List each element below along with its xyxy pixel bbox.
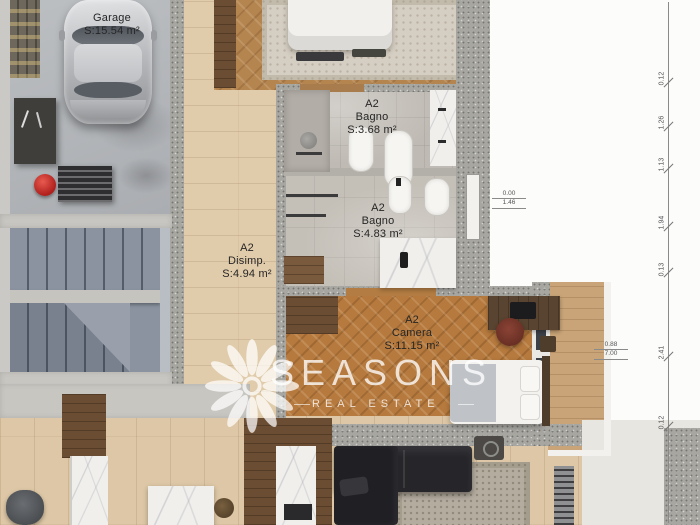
laptop	[510, 302, 536, 319]
bed	[288, 0, 392, 50]
room-name: Disimp.	[197, 255, 297, 268]
room-area: S:3.68 m²	[322, 124, 422, 137]
level-marker: 0.00 1.46	[492, 190, 526, 209]
stairs-upper-flight	[8, 228, 160, 290]
desk-chair	[496, 318, 524, 346]
shower-valve-bar	[296, 152, 322, 155]
room-area: S:4.83 m²	[328, 228, 428, 241]
watermark-dash-left	[294, 404, 310, 405]
disimpegno-label: A2 Disimp. S:4.94 m²	[197, 242, 297, 281]
wall-terrace-corner	[664, 428, 700, 525]
stool	[214, 498, 234, 518]
kitchen-island	[148, 486, 214, 525]
dimension-label: 0.12	[659, 66, 666, 92]
bagno-large-label: A2 Bagno S:4.83 m²	[328, 202, 428, 241]
vanity-faucet	[400, 252, 408, 268]
bed-bench	[296, 52, 344, 61]
bed-bench-small	[352, 49, 386, 57]
room-area: S:4.94 m²	[197, 268, 297, 281]
shower-mixer	[438, 140, 446, 143]
pillow	[520, 394, 540, 420]
towel-rail	[286, 194, 338, 197]
level-value: 7.00	[594, 350, 628, 359]
wall-left-outer	[0, 0, 10, 418]
bed-headboard	[542, 356, 550, 426]
room-code: A2	[328, 202, 428, 215]
room-name: Garage	[64, 12, 160, 25]
car-rear-window	[74, 82, 142, 98]
towel-rail	[286, 214, 326, 217]
armchair	[6, 490, 44, 525]
bedroom-wardrobe	[214, 0, 236, 88]
balcony-railing-bottom	[548, 450, 611, 456]
stairs-landing	[8, 290, 160, 303]
fridge-column	[70, 456, 108, 525]
dimension-label: 1.26	[659, 110, 666, 136]
sofa-cushion-seam	[403, 450, 405, 488]
stove-knob	[483, 441, 499, 457]
room-name: Camera	[362, 327, 462, 340]
dimension-label: 1.13	[659, 152, 666, 178]
room-area: S:15.54 m²	[64, 25, 160, 38]
camera-door-threshold	[346, 288, 436, 296]
wall-right-main	[456, 0, 490, 296]
balcony-railing	[604, 282, 611, 452]
garage-label: Garage S:15.54 m²	[64, 12, 160, 38]
room-code: A2	[322, 98, 422, 111]
room-code: A2	[197, 242, 297, 255]
bidet-tap	[396, 178, 401, 186]
pillow	[520, 366, 540, 392]
radiator-louver	[554, 466, 574, 525]
wall-garage-corridor	[170, 0, 184, 418]
dimension-label: 0.12	[659, 410, 666, 436]
room-code: A2	[362, 314, 462, 327]
tool-cabinet	[14, 98, 56, 164]
dimension-label: 0.13	[659, 257, 666, 283]
car-roof	[74, 44, 142, 82]
room-name: Bagno	[328, 215, 428, 228]
camera-label: A2 Camera S:11.15 m²	[362, 314, 462, 353]
floor-plan: Garage S:15.54 m² A2 Bagno S:3.68 m² A2 …	[0, 0, 700, 525]
red-emergency-button	[34, 174, 56, 196]
wardrobe-column	[62, 394, 106, 458]
camera-wardrobe	[286, 296, 338, 334]
dimension-label: 1.94	[659, 210, 666, 236]
bagno-small-label: A2 Bagno S:3.68 m²	[322, 98, 422, 137]
wall-balcony-top	[532, 282, 550, 296]
watermark-tagline: REAL ESTATE	[312, 398, 440, 410]
garage-grill-unit	[58, 166, 112, 202]
shower-mixer	[438, 108, 446, 111]
level-value: 0.88	[594, 341, 628, 350]
shower-head	[300, 132, 317, 149]
dimension-label: 2.41	[659, 340, 666, 366]
room-area: S:11.15 m²	[362, 340, 462, 353]
watermark-dash-right	[458, 404, 474, 405]
level-marker: 0.88 7.00	[594, 341, 628, 360]
console-slot	[284, 504, 312, 520]
wall-garage-bottom	[0, 214, 172, 228]
garage-shelf	[8, 0, 40, 78]
level-value: 0.00	[492, 190, 526, 199]
shower-marble-panel	[430, 90, 456, 166]
level-value: 1.46	[492, 199, 526, 208]
window-right-wall	[466, 174, 480, 240]
room-name: Bagno	[322, 111, 422, 124]
nightstand	[540, 336, 556, 352]
vanity-counter	[380, 238, 456, 288]
stairs-edge	[160, 228, 170, 372]
car-trunk	[70, 100, 146, 118]
watermark-brand: SEASONS	[270, 352, 493, 394]
